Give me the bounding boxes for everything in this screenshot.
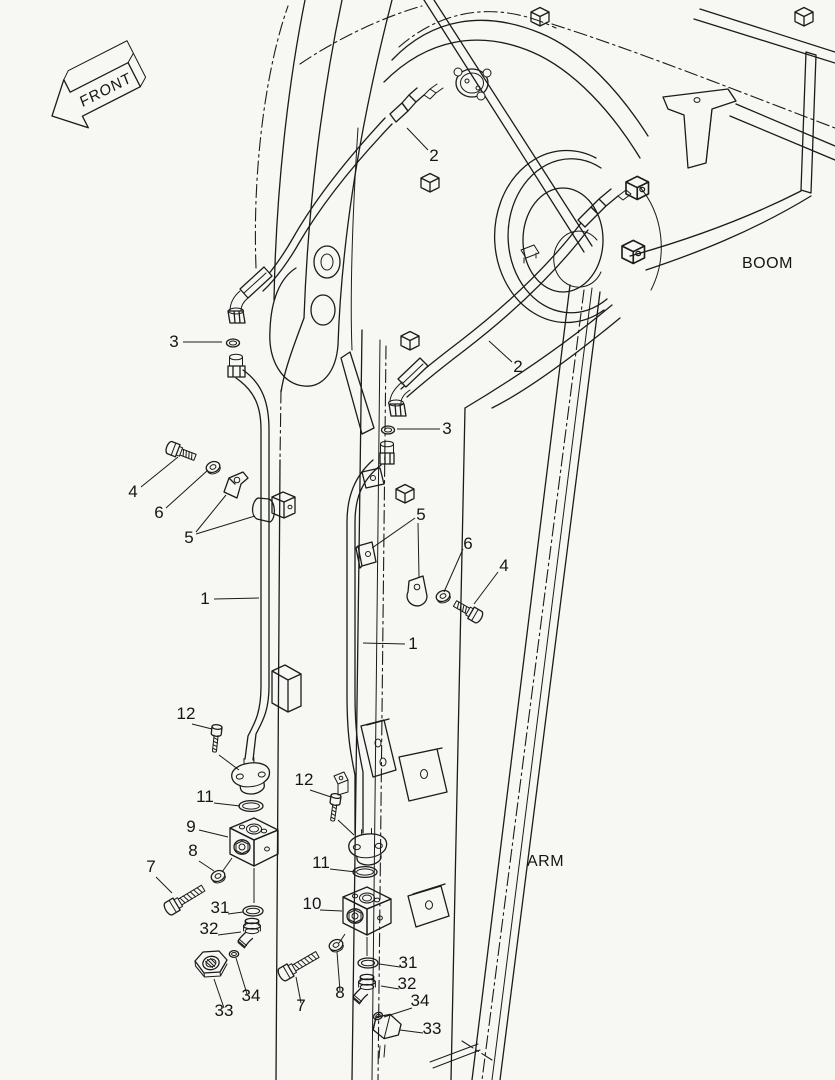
callout-2-right: 2 <box>513 357 522 376</box>
callout-34-left: 34 <box>242 986 261 1005</box>
hose-guide-disc <box>454 68 491 100</box>
flanged-elbow-left <box>230 756 273 797</box>
callout-5-right: 5 <box>416 505 425 524</box>
callout-8-left: 8 <box>188 841 197 860</box>
callout-34-right: 34 <box>411 991 430 1010</box>
callout-7-left: 7 <box>146 857 155 876</box>
guide-cube <box>396 485 414 504</box>
guide-cube <box>531 8 549 27</box>
leader-lines <box>141 128 512 1033</box>
callout-3-right: 3 <box>442 419 451 438</box>
o-ring-31-right <box>358 958 378 968</box>
guide-cube <box>421 174 439 193</box>
backup-ring-34-left <box>229 951 238 958</box>
callout-4-left: 4 <box>128 482 137 501</box>
guide-cube <box>795 8 813 27</box>
parts-diagram-svg: FRONT <box>0 0 835 1080</box>
mounting-brackets <box>272 665 449 927</box>
callout-9: 9 <box>186 817 195 836</box>
boom-structure <box>255 0 835 1080</box>
bolt-4-left <box>164 440 197 463</box>
bolt-7-left <box>162 882 206 916</box>
callout-8-right: 8 <box>335 983 344 1002</box>
callout-2-upper-left: 2 <box>429 146 438 165</box>
bolt-7-right <box>276 948 321 982</box>
arm-label: ARM <box>527 853 564 870</box>
callouts: 2 3 2 3 4 6 5 5 6 4 1 1 12 12 11 9 8 11 … <box>128 146 522 1038</box>
o-ring-31-left <box>243 906 263 916</box>
elbow-fitting-32-right <box>353 974 375 1004</box>
guide-cube <box>626 176 649 199</box>
callout-1-left: 1 <box>200 589 209 608</box>
clamp-5-hook-right <box>407 576 427 606</box>
elbow-fitting-32-left <box>238 918 260 948</box>
plate-boss <box>314 246 340 278</box>
callout-6-right: 6 <box>463 534 472 553</box>
hardware-right <box>276 793 402 1058</box>
callout-5-left: 5 <box>184 528 193 547</box>
callout-12-left: 12 <box>177 704 196 723</box>
o-ring-3-right <box>382 426 395 434</box>
callout-4-right: 4 <box>499 556 508 575</box>
flanged-elbow-right <box>347 827 389 867</box>
hose-2-right <box>389 189 632 416</box>
o-ring-11-left <box>239 801 263 812</box>
callout-3-left: 3 <box>169 332 178 351</box>
callout-33-right: 33 <box>423 1019 442 1038</box>
pipe-1-right <box>347 441 394 833</box>
washer-6-left <box>205 460 222 476</box>
valve-block-10 <box>343 887 391 935</box>
plate-wedge <box>341 352 374 434</box>
clamp-plate-right <box>362 468 384 488</box>
bolt-4-right <box>452 598 485 624</box>
arm-structure <box>430 285 600 1080</box>
clamp-5-strap-left <box>253 498 275 522</box>
callout-31-left: 31 <box>211 898 230 917</box>
boom-label: BOOM <box>742 255 793 272</box>
o-ring-3-left <box>227 339 240 347</box>
nut-33-left <box>195 951 227 977</box>
pipe-1-left <box>228 354 269 760</box>
callout-32-left: 32 <box>200 919 219 938</box>
washer-6-right <box>435 589 452 605</box>
guide-cube <box>622 240 645 263</box>
callout-6-left: 6 <box>154 503 163 522</box>
clamp-5-bracket-left <box>224 472 248 498</box>
o-ring-11-right <box>353 867 377 878</box>
boom-post <box>801 52 816 193</box>
callout-11-left: 11 <box>196 787 214 806</box>
plate-hole <box>311 295 335 325</box>
valve-block-9 <box>230 818 278 866</box>
break-ticks <box>379 1045 385 1058</box>
front-arrow: FRONT <box>37 41 154 140</box>
callout-33-left: 33 <box>215 1001 234 1020</box>
boom-foot-casting <box>465 151 661 408</box>
hose-2-left <box>228 68 491 323</box>
callout-1-right: 1 <box>408 634 417 653</box>
callout-11-right: 11 <box>312 853 330 872</box>
washer-8-left <box>210 869 227 885</box>
callout-12-right: 12 <box>295 770 314 789</box>
callout-10: 10 <box>303 894 322 913</box>
callout-31-right: 31 <box>399 953 418 972</box>
callout-7-right: 7 <box>296 996 305 1015</box>
guide-cube <box>401 332 419 351</box>
bolt-12-right <box>328 793 342 822</box>
diagram-canvas: FRONT <box>0 0 835 1080</box>
washer-8-right <box>328 938 345 954</box>
cylinder-rod <box>424 0 592 252</box>
clamp-group-left <box>164 440 295 522</box>
